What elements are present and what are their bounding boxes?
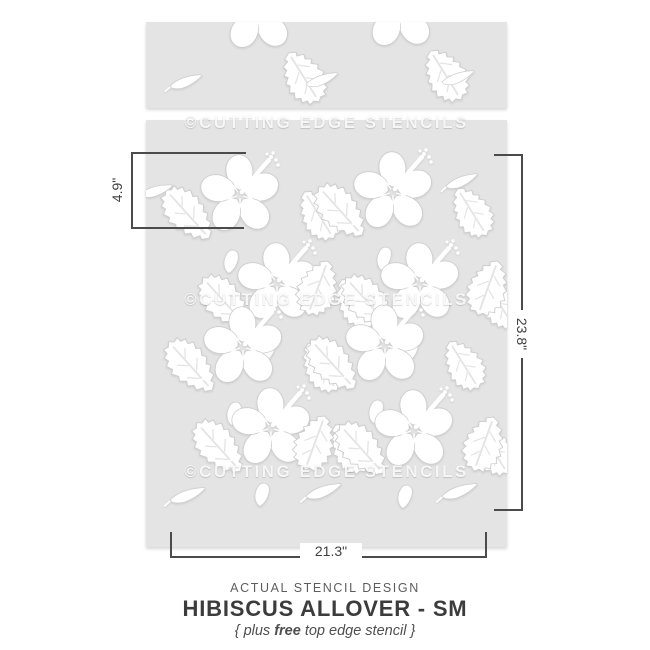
dimension-line-strip-bottom xyxy=(131,227,244,229)
slender-leaf-cutout xyxy=(163,74,203,92)
dimension-line-strip-top xyxy=(131,152,246,154)
main-stencil xyxy=(146,120,507,547)
slender-leaf-cutout xyxy=(298,483,342,502)
subtitle-suffix: top edge stencil } xyxy=(301,623,415,639)
dimension-label-strip-height: 4.9" xyxy=(109,169,125,211)
hibiscus-cluster-cutout xyxy=(296,301,494,424)
caption-kicker: ACTUAL STENCIL DESIGN xyxy=(0,581,650,595)
hibiscus-flower-cutout xyxy=(215,22,300,53)
dimension-line-height-top xyxy=(494,154,523,156)
hibiscus-cluster-cutout xyxy=(304,148,502,271)
subtitle-prefix: { plus xyxy=(235,623,275,639)
slender-leaf-cutout xyxy=(434,483,478,502)
product-image: ©CUTTING EDGE STENCILS ©CUTTING EDGE STE… xyxy=(0,0,650,650)
dimension-line-height-bottom xyxy=(494,509,523,511)
product-title: HIBISCUS ALLOVER - SM xyxy=(0,596,650,622)
dimension-tick-width-left xyxy=(170,532,172,558)
dimension-label-panel-height: 23.8" xyxy=(513,310,531,358)
dimension-line-strip-vertical xyxy=(131,152,133,229)
top-edge-stencil xyxy=(146,22,507,108)
hibiscus-flower-cutout xyxy=(357,22,442,51)
slender-leaf-cutout xyxy=(162,487,206,506)
dimension-label-panel-width: 21.3" xyxy=(300,543,362,559)
caption-subtitle: { plus free top edge stencil } xyxy=(0,623,650,639)
subtitle-free: free xyxy=(274,623,301,639)
dimension-tick-width-right xyxy=(485,532,487,558)
